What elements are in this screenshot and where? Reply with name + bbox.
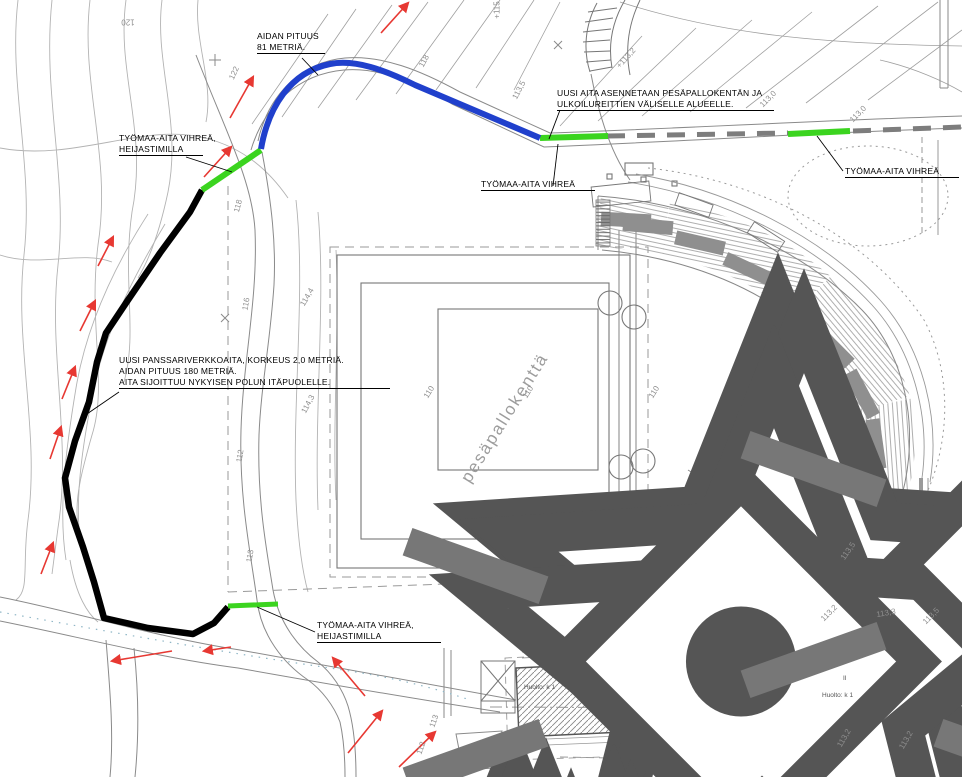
stairs-curved: [583, 0, 640, 75]
survey-crosses: [209, 41, 562, 322]
annex-left: [481, 661, 515, 713]
site-plan-sheet: AIDAN PITUUS 81 METRIÄ. TYÖMAA-AITA VIHR…: [0, 0, 962, 777]
fence-new-blue: [261, 63, 540, 149]
direction-arrows: [41, 3, 435, 767]
site-plan-drawing: [0, 0, 962, 777]
